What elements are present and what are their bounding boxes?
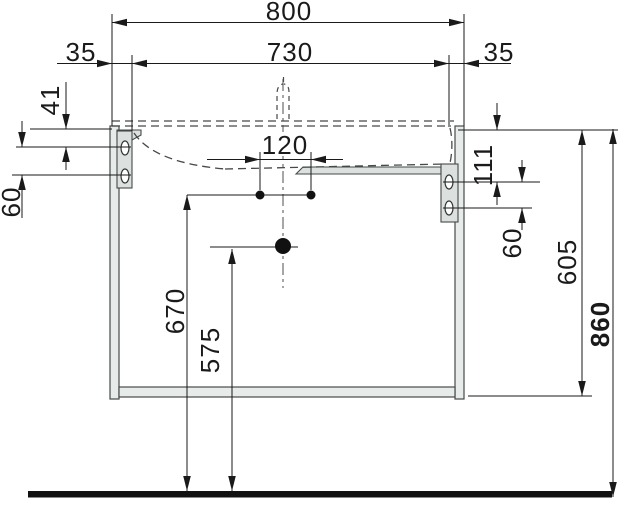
dim-label-860: 860 [585, 301, 615, 347]
arrow-right-icon [245, 156, 260, 164]
arrow-up-icon [62, 147, 70, 162]
arrow-left-icon [311, 156, 326, 164]
fixing-point-right-dot [307, 191, 316, 200]
dim-label-605: 605 [552, 239, 582, 285]
floor-line [28, 491, 612, 498]
arrow-right-icon [449, 19, 464, 27]
drain-outlet-dot [275, 238, 291, 254]
vanity-dimension-drawing: 800 730 35 35 120 41 [0, 0, 640, 507]
dim-label-670: 670 [160, 288, 190, 334]
cabinet-bottom-panel [119, 387, 455, 397]
arrow-down-icon [518, 167, 526, 182]
dim-label-35-right: 35 [484, 37, 515, 67]
dim-label-60-right: 60 [497, 228, 527, 259]
dim-label-575: 575 [195, 327, 225, 373]
mounting-bracket-right [441, 164, 458, 222]
arrow-down-icon [183, 476, 191, 491]
dim-670: 670 [160, 195, 191, 491]
support-rail [296, 167, 441, 174]
dim-730: 730 [132, 37, 449, 131]
arrow-down-icon [578, 381, 586, 396]
dim-120: 120 [207, 130, 343, 190]
dim-label-35-left: 35 [66, 37, 97, 67]
basin-right-edge [450, 128, 452, 163]
arrow-up-icon [609, 129, 617, 144]
technical-drawing-canvas: 800 730 35 35 120 41 [0, 0, 640, 507]
fixing-point-left-dot [256, 191, 265, 200]
faucet-left-contour [277, 84, 283, 119]
arrow-down-icon [18, 132, 26, 147]
dim-860: 860 [585, 129, 617, 497]
arrow-up-icon [518, 208, 526, 223]
dim-label-41: 41 [35, 85, 65, 116]
arrow-right-icon [434, 60, 449, 68]
dim-35-right: 35 [449, 37, 514, 67]
mounting-bracket-left [117, 130, 141, 188]
basin-bowl-curve [134, 133, 225, 169]
dim-label-60-left: 60 [0, 187, 26, 218]
dim-label-111: 111 [468, 144, 498, 187]
arrow-up-icon [228, 249, 236, 264]
arrow-up-icon [578, 130, 586, 145]
basin-support-rail [296, 167, 441, 174]
dim-35-left: 35 [57, 37, 132, 67]
arrow-up-icon [183, 195, 191, 210]
dim-label-800: 800 [266, 0, 312, 26]
arrow-left-icon [132, 60, 147, 68]
arrow-right-icon [97, 60, 112, 68]
bracket-left-hole-top [121, 141, 129, 155]
arrow-left-icon [464, 60, 479, 68]
dim-label-730: 730 [267, 37, 313, 67]
bracket-left-hole-bottom [121, 169, 129, 183]
arrow-down-icon [228, 476, 236, 491]
dim-575: 575 [195, 249, 236, 491]
dim-111-right: 111 [443, 103, 618, 205]
arrow-left-icon [112, 19, 127, 27]
faucet-right-contour [284, 84, 289, 119]
arrow-down-icon [493, 115, 501, 130]
dim-label-120: 120 [262, 130, 308, 160]
